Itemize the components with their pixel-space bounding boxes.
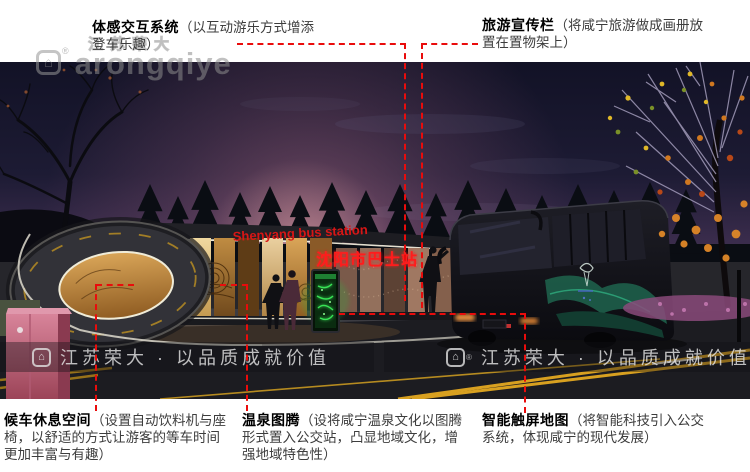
- watermark-logo-icon: ⌂: [446, 348, 465, 367]
- leader-line-touchmap-h: [339, 313, 526, 315]
- watermark-slogan: 江苏荣大 · 以品质成就价值: [481, 344, 750, 370]
- callout-touch-map: 智能触屏地图（将智能科技引入公交 系统，体现咸宁的现代发展）: [482, 412, 734, 446]
- watermark-band-left: ⌂ 江苏荣大 · 以品质成就价值: [0, 342, 374, 372]
- leader-line-waiting-h: [96, 284, 134, 286]
- callout-interaction-system: 体感交互系统（以互动游乐方式增添 登车乐趣）: [92, 19, 344, 53]
- callout-title: 体感交互系统: [92, 19, 179, 35]
- registered-mark: ®: [466, 353, 472, 362]
- watermark-band-right: ⌂® 江苏荣大 · 以品质成就价值: [384, 342, 750, 372]
- bus: [437, 201, 687, 354]
- callout-waiting-space: 候车休息空间（设置自动饮料机与座 椅，以舒适的方式让游客的等车时间 更加丰富与有…: [4, 412, 244, 463]
- leader-line-totem-v: [246, 284, 248, 411]
- registered-mark: ®: [62, 46, 69, 56]
- callout-title: 智能触屏地图: [482, 412, 569, 428]
- callout-hotspring-totem: 温泉图腾（设将咸宁温泉文化以图腾 形式置入公交站，凸显地域文化，增 强地域特色性…: [242, 412, 480, 463]
- station-sign-chinese: 沈阳市巴士站: [316, 250, 418, 269]
- watermark-logo-icon: ⌂: [32, 348, 51, 367]
- slide: Shenyang bus station 沈阳市巴士站: [0, 0, 750, 472]
- callout-title: 候车休息空间: [4, 412, 91, 428]
- callout-title: 温泉图腾: [242, 412, 300, 428]
- leader-line-tourism-v: [421, 43, 423, 308]
- leader-line-waiting-v: [95, 284, 97, 411]
- watermark-slogan: 江苏荣大 · 以品质成就价值: [60, 344, 330, 370]
- leader-line-interaction-v: [404, 43, 406, 301]
- leader-line-touchmap-v: [524, 313, 526, 413]
- leader-line-tourism-h: [421, 43, 478, 45]
- leader-line-totem-h: [220, 284, 248, 286]
- leader-line-interaction-h: [237, 43, 406, 45]
- callout-title: 旅游宣传栏: [482, 17, 555, 33]
- callout-tourism-board: 旅游宣传栏（将咸宁旅游做成画册放 置在置物架上）: [482, 17, 732, 51]
